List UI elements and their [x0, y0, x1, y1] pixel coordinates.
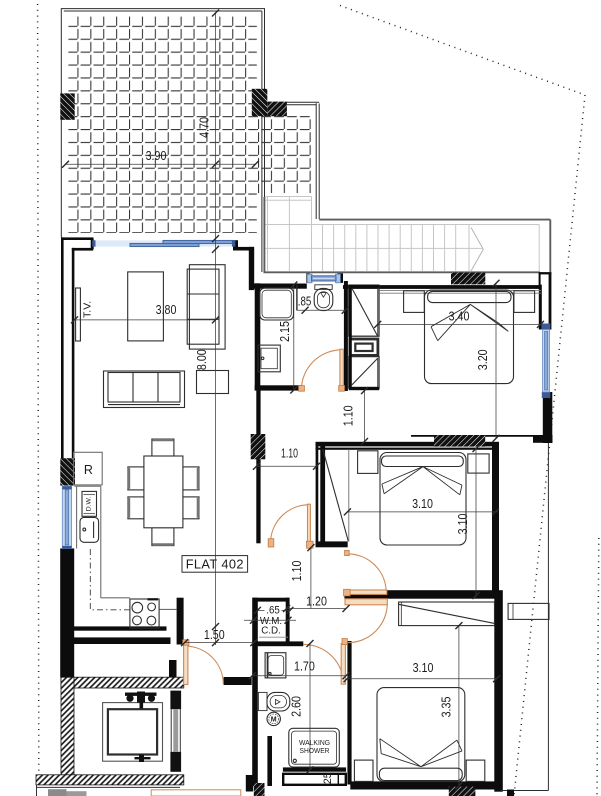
svg-text:T.V.: T.V. — [82, 301, 94, 318]
svg-text:25: 25 — [322, 773, 334, 785]
svg-text:2.60: 2.60 — [289, 696, 304, 717]
svg-text:3.10: 3.10 — [412, 496, 433, 511]
svg-text:1.20: 1.20 — [306, 593, 327, 608]
svg-text:3.35: 3.35 — [438, 697, 453, 718]
svg-text:8.00: 8.00 — [194, 349, 209, 370]
svg-text:.85: .85 — [298, 294, 312, 309]
svg-text:SHOWER: SHOWER — [300, 746, 330, 755]
svg-text:4.70: 4.70 — [197, 117, 212, 138]
svg-text:M: M — [271, 717, 277, 724]
svg-text:FLAT 402: FLAT 402 — [186, 556, 244, 571]
svg-text:3.90: 3.90 — [146, 148, 167, 163]
svg-text:2.15: 2.15 — [277, 321, 292, 342]
svg-text:D.W.: D.W. — [86, 496, 93, 511]
svg-text:3.10: 3.10 — [413, 660, 434, 675]
svg-text:1.10: 1.10 — [281, 446, 298, 461]
svg-text:3.10: 3.10 — [455, 514, 470, 535]
svg-text:3.40: 3.40 — [449, 308, 470, 323]
svg-text:.65: .65 — [266, 604, 280, 616]
svg-text:1.10: 1.10 — [289, 561, 304, 582]
svg-text:1.70: 1.70 — [294, 659, 315, 674]
svg-text:R: R — [84, 463, 93, 477]
svg-text:C.D.: C.D. — [261, 626, 281, 637]
svg-text:3.80: 3.80 — [156, 302, 177, 317]
svg-text:3.20: 3.20 — [475, 349, 490, 370]
svg-text:1.50: 1.50 — [204, 627, 225, 642]
svg-text:1.10: 1.10 — [341, 405, 356, 426]
